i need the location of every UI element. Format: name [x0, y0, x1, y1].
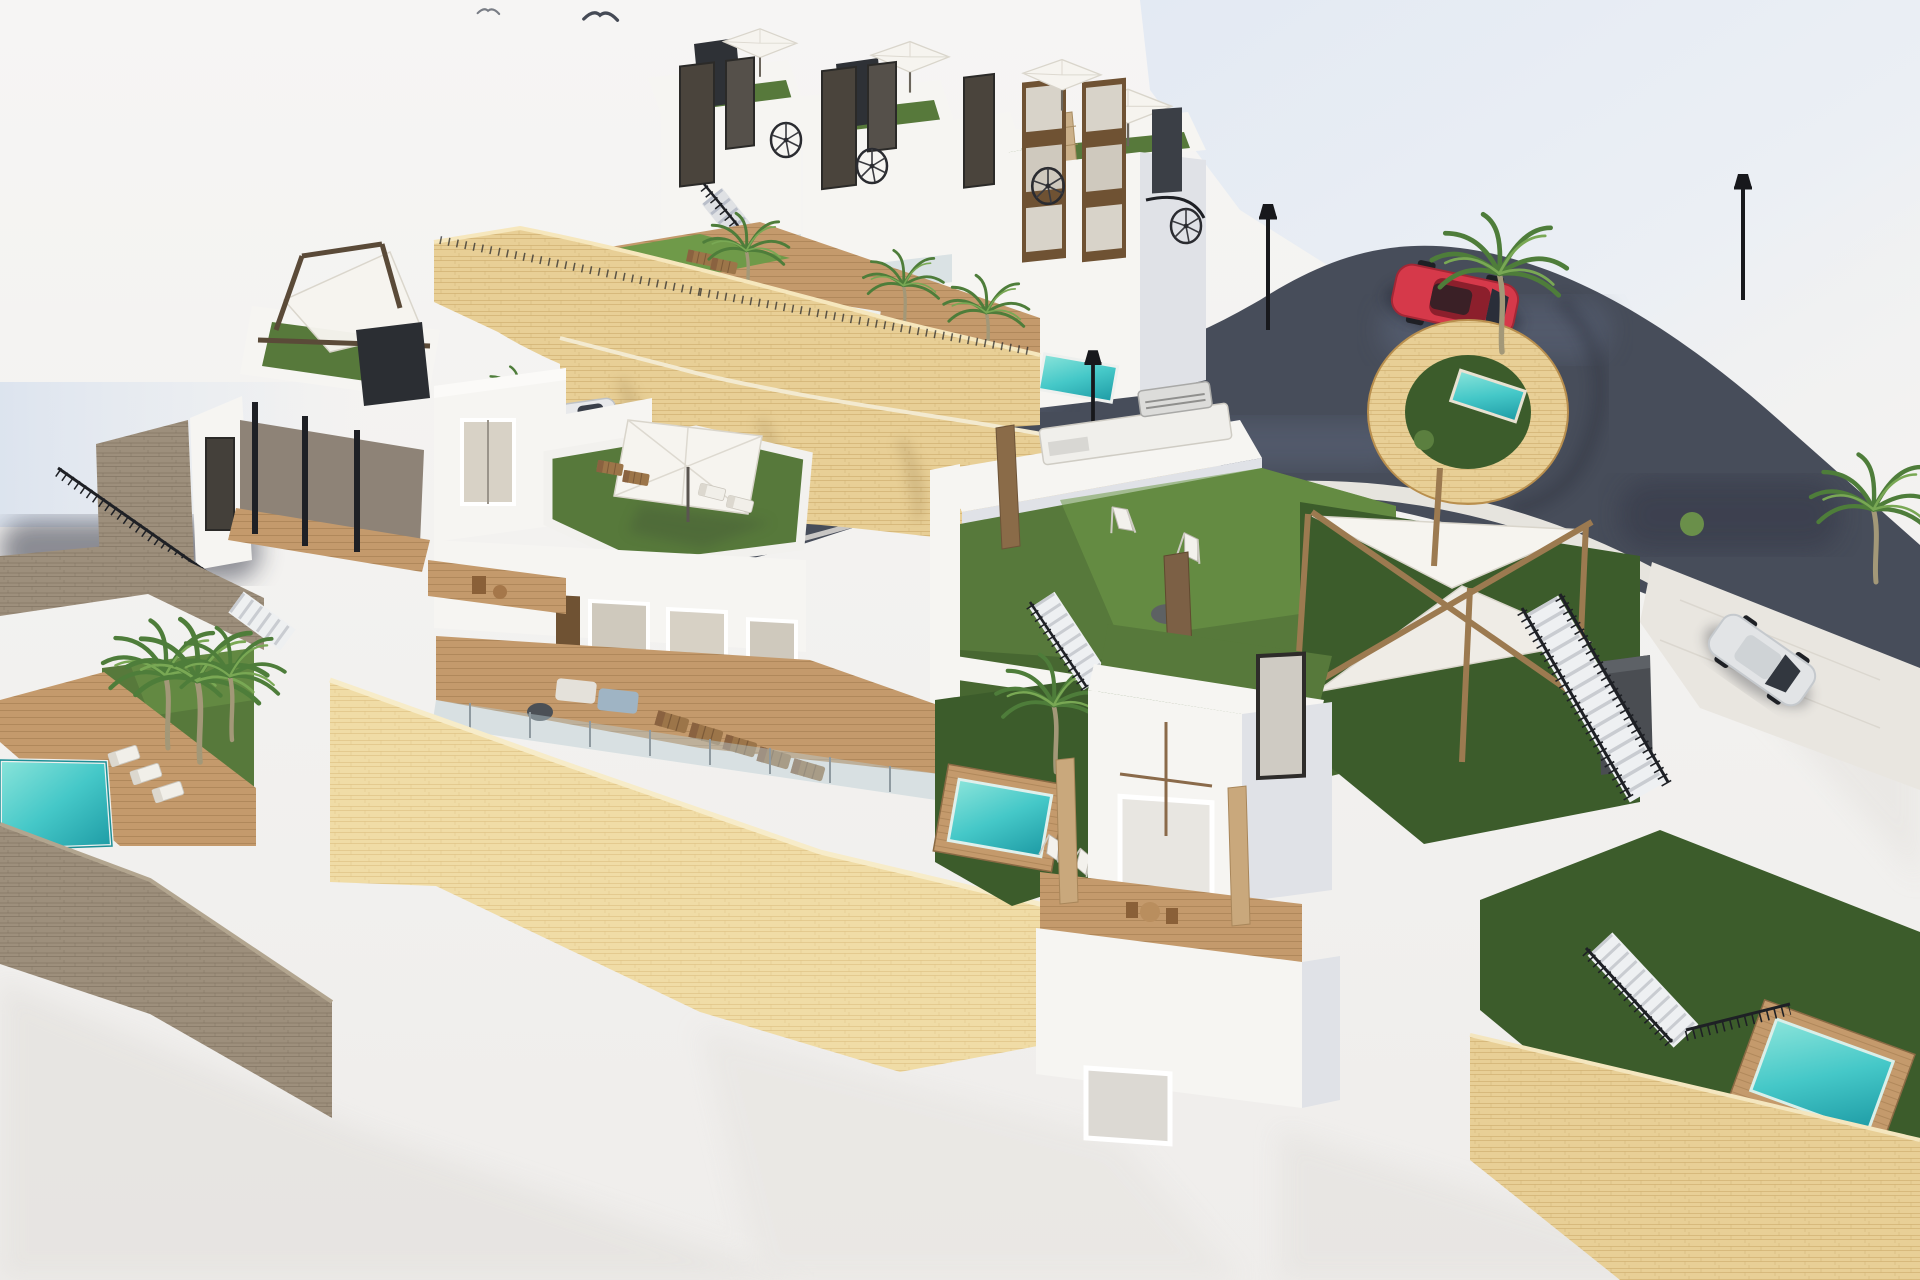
slim-column — [252, 402, 258, 534]
sofa-cushion — [597, 688, 639, 714]
window-tall — [680, 62, 714, 186]
dark-chimney — [356, 322, 430, 406]
window — [1086, 144, 1122, 192]
window — [1086, 1068, 1170, 1144]
sofa-cushion — [555, 678, 597, 704]
asphalt-patch — [1620, 480, 1840, 550]
architectural-render — [0, 0, 1920, 1280]
window-tall — [822, 67, 856, 189]
window — [206, 438, 234, 530]
bistro-chair — [1166, 908, 1178, 924]
balcony-chair — [472, 576, 486, 594]
slim-column — [302, 416, 308, 546]
lower-side-shade — [1302, 956, 1340, 1108]
tiled-column — [1228, 786, 1250, 926]
bistro-table — [1140, 902, 1160, 922]
window — [726, 57, 754, 148]
window-dark-frame — [1258, 654, 1304, 778]
window — [1086, 84, 1122, 132]
shrub — [1414, 430, 1434, 450]
side-window — [1152, 107, 1182, 193]
tiled-column — [1056, 758, 1078, 904]
shrub — [1680, 512, 1704, 536]
window — [868, 62, 896, 151]
window — [1026, 84, 1062, 132]
window-tall — [964, 74, 994, 188]
render-canvas — [0, 0, 1920, 1280]
slim-column — [354, 430, 360, 552]
bistro-chair — [1126, 902, 1138, 918]
window — [1086, 204, 1122, 252]
window — [1026, 204, 1062, 252]
balcony-table — [493, 585, 507, 599]
